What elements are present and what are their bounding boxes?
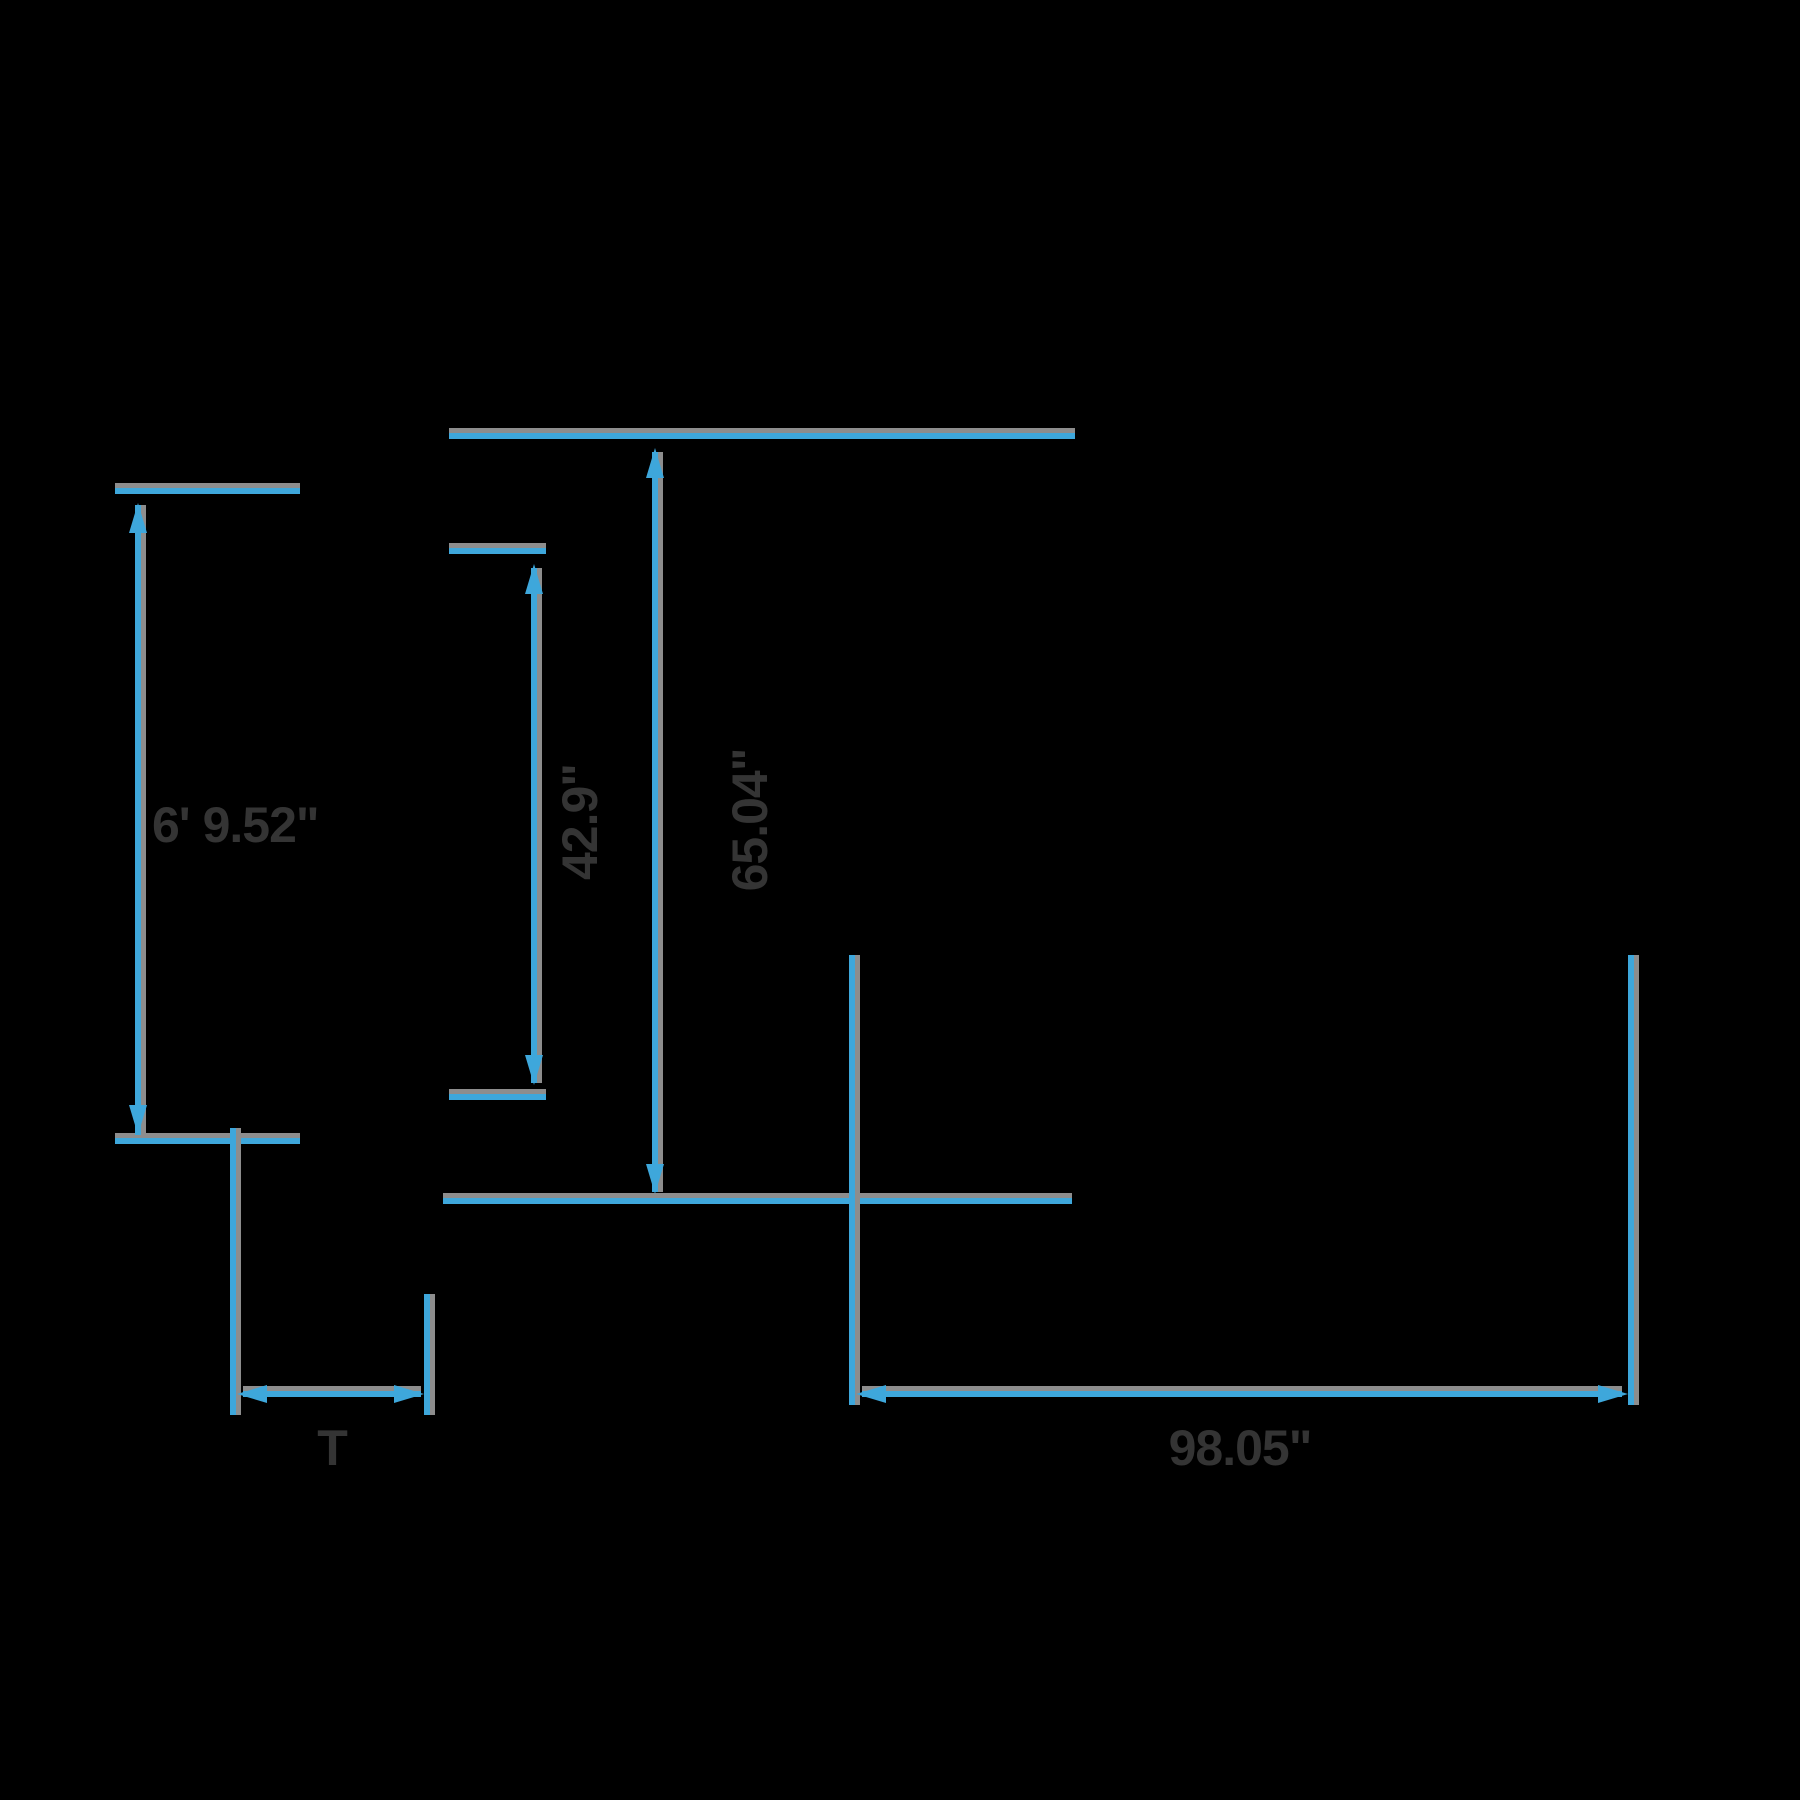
arrow-up-icon — [646, 448, 664, 478]
arrow-down-icon — [525, 1055, 543, 1085]
overall-width-label: 98.05" — [1169, 1419, 1312, 1477]
extension-line-offset-left — [230, 1128, 236, 1415]
dimension-line-width — [862, 1391, 1622, 1397]
extension-line-width-right — [1628, 955, 1634, 1405]
dimension-line-overall-height — [652, 452, 658, 1192]
arrow-left-icon — [856, 1385, 886, 1403]
arrow-right-icon — [1598, 1385, 1628, 1403]
arrow-left-icon — [237, 1385, 267, 1403]
arrow-down-icon — [129, 1105, 147, 1135]
arrow-right-icon — [394, 1385, 424, 1403]
extension-line-left-bottom — [115, 1138, 300, 1144]
extension-line-width-left — [849, 955, 855, 1405]
extension-line-inner-top — [449, 548, 546, 554]
extension-line-overall-top — [449, 433, 1075, 439]
extension-line-offset-right — [424, 1294, 430, 1415]
arrow-down-icon — [646, 1164, 664, 1194]
left-height-label: 6' 9.52" — [152, 796, 319, 854]
dimension-line-left-height — [135, 505, 141, 1135]
arrow-up-icon — [129, 503, 147, 533]
dimension-line-inner-height — [531, 568, 537, 1083]
extension-line-inner-bottom — [449, 1094, 546, 1100]
inner-height-label: 42.9" — [551, 764, 609, 880]
extension-line-left-top — [115, 488, 300, 494]
overall-height-label: 65.04" — [721, 749, 779, 892]
arrow-up-icon — [525, 564, 543, 594]
dimension-diagram: 6' 9.52" 42.9" 65.04" T 98.05" — [0, 0, 1800, 1800]
extension-line-overall-bottom — [443, 1198, 1072, 1204]
bottom-offset-label: T — [317, 1419, 347, 1477]
